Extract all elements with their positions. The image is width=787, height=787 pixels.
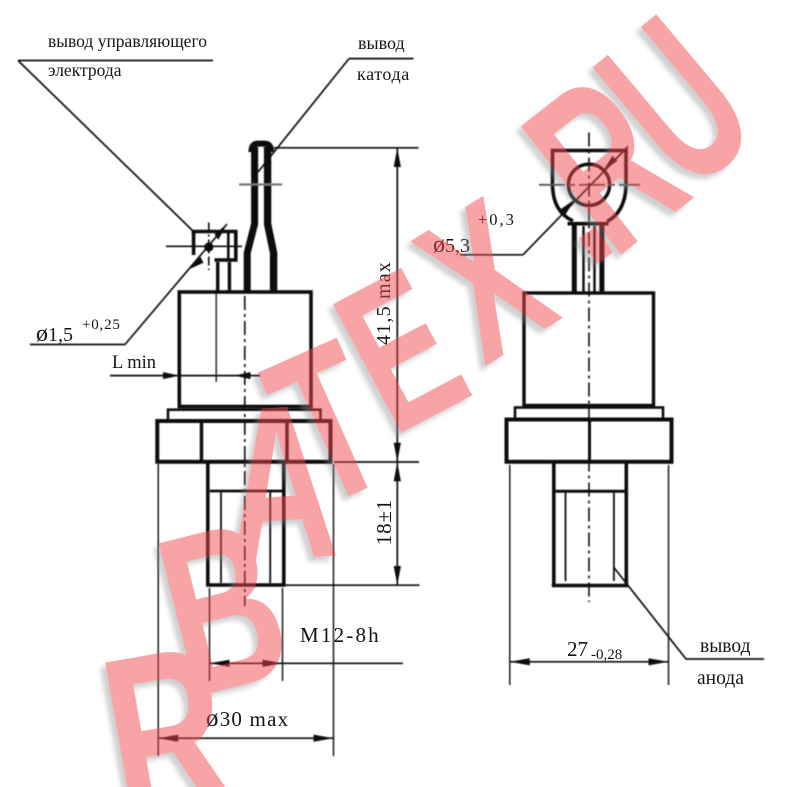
svg-text:-0,28: -0,28 xyxy=(591,647,622,663)
svg-text:L min: L min xyxy=(112,353,156,373)
svg-text:вывод: вывод xyxy=(358,33,405,53)
svg-text:вывод: вывод xyxy=(700,636,751,657)
svg-text:катода: катода xyxy=(357,64,410,84)
svg-text:27: 27 xyxy=(567,637,588,661)
svg-text:анода: анода xyxy=(697,668,744,689)
svg-text:+0,25: +0,25 xyxy=(82,317,121,333)
svg-text:M12-8h: M12-8h xyxy=(300,623,381,647)
svg-text:вывод управляющего: вывод управляющего xyxy=(48,31,207,51)
svg-text:ø1,5: ø1,5 xyxy=(36,321,73,347)
svg-text:электрода: электрода xyxy=(48,60,122,80)
